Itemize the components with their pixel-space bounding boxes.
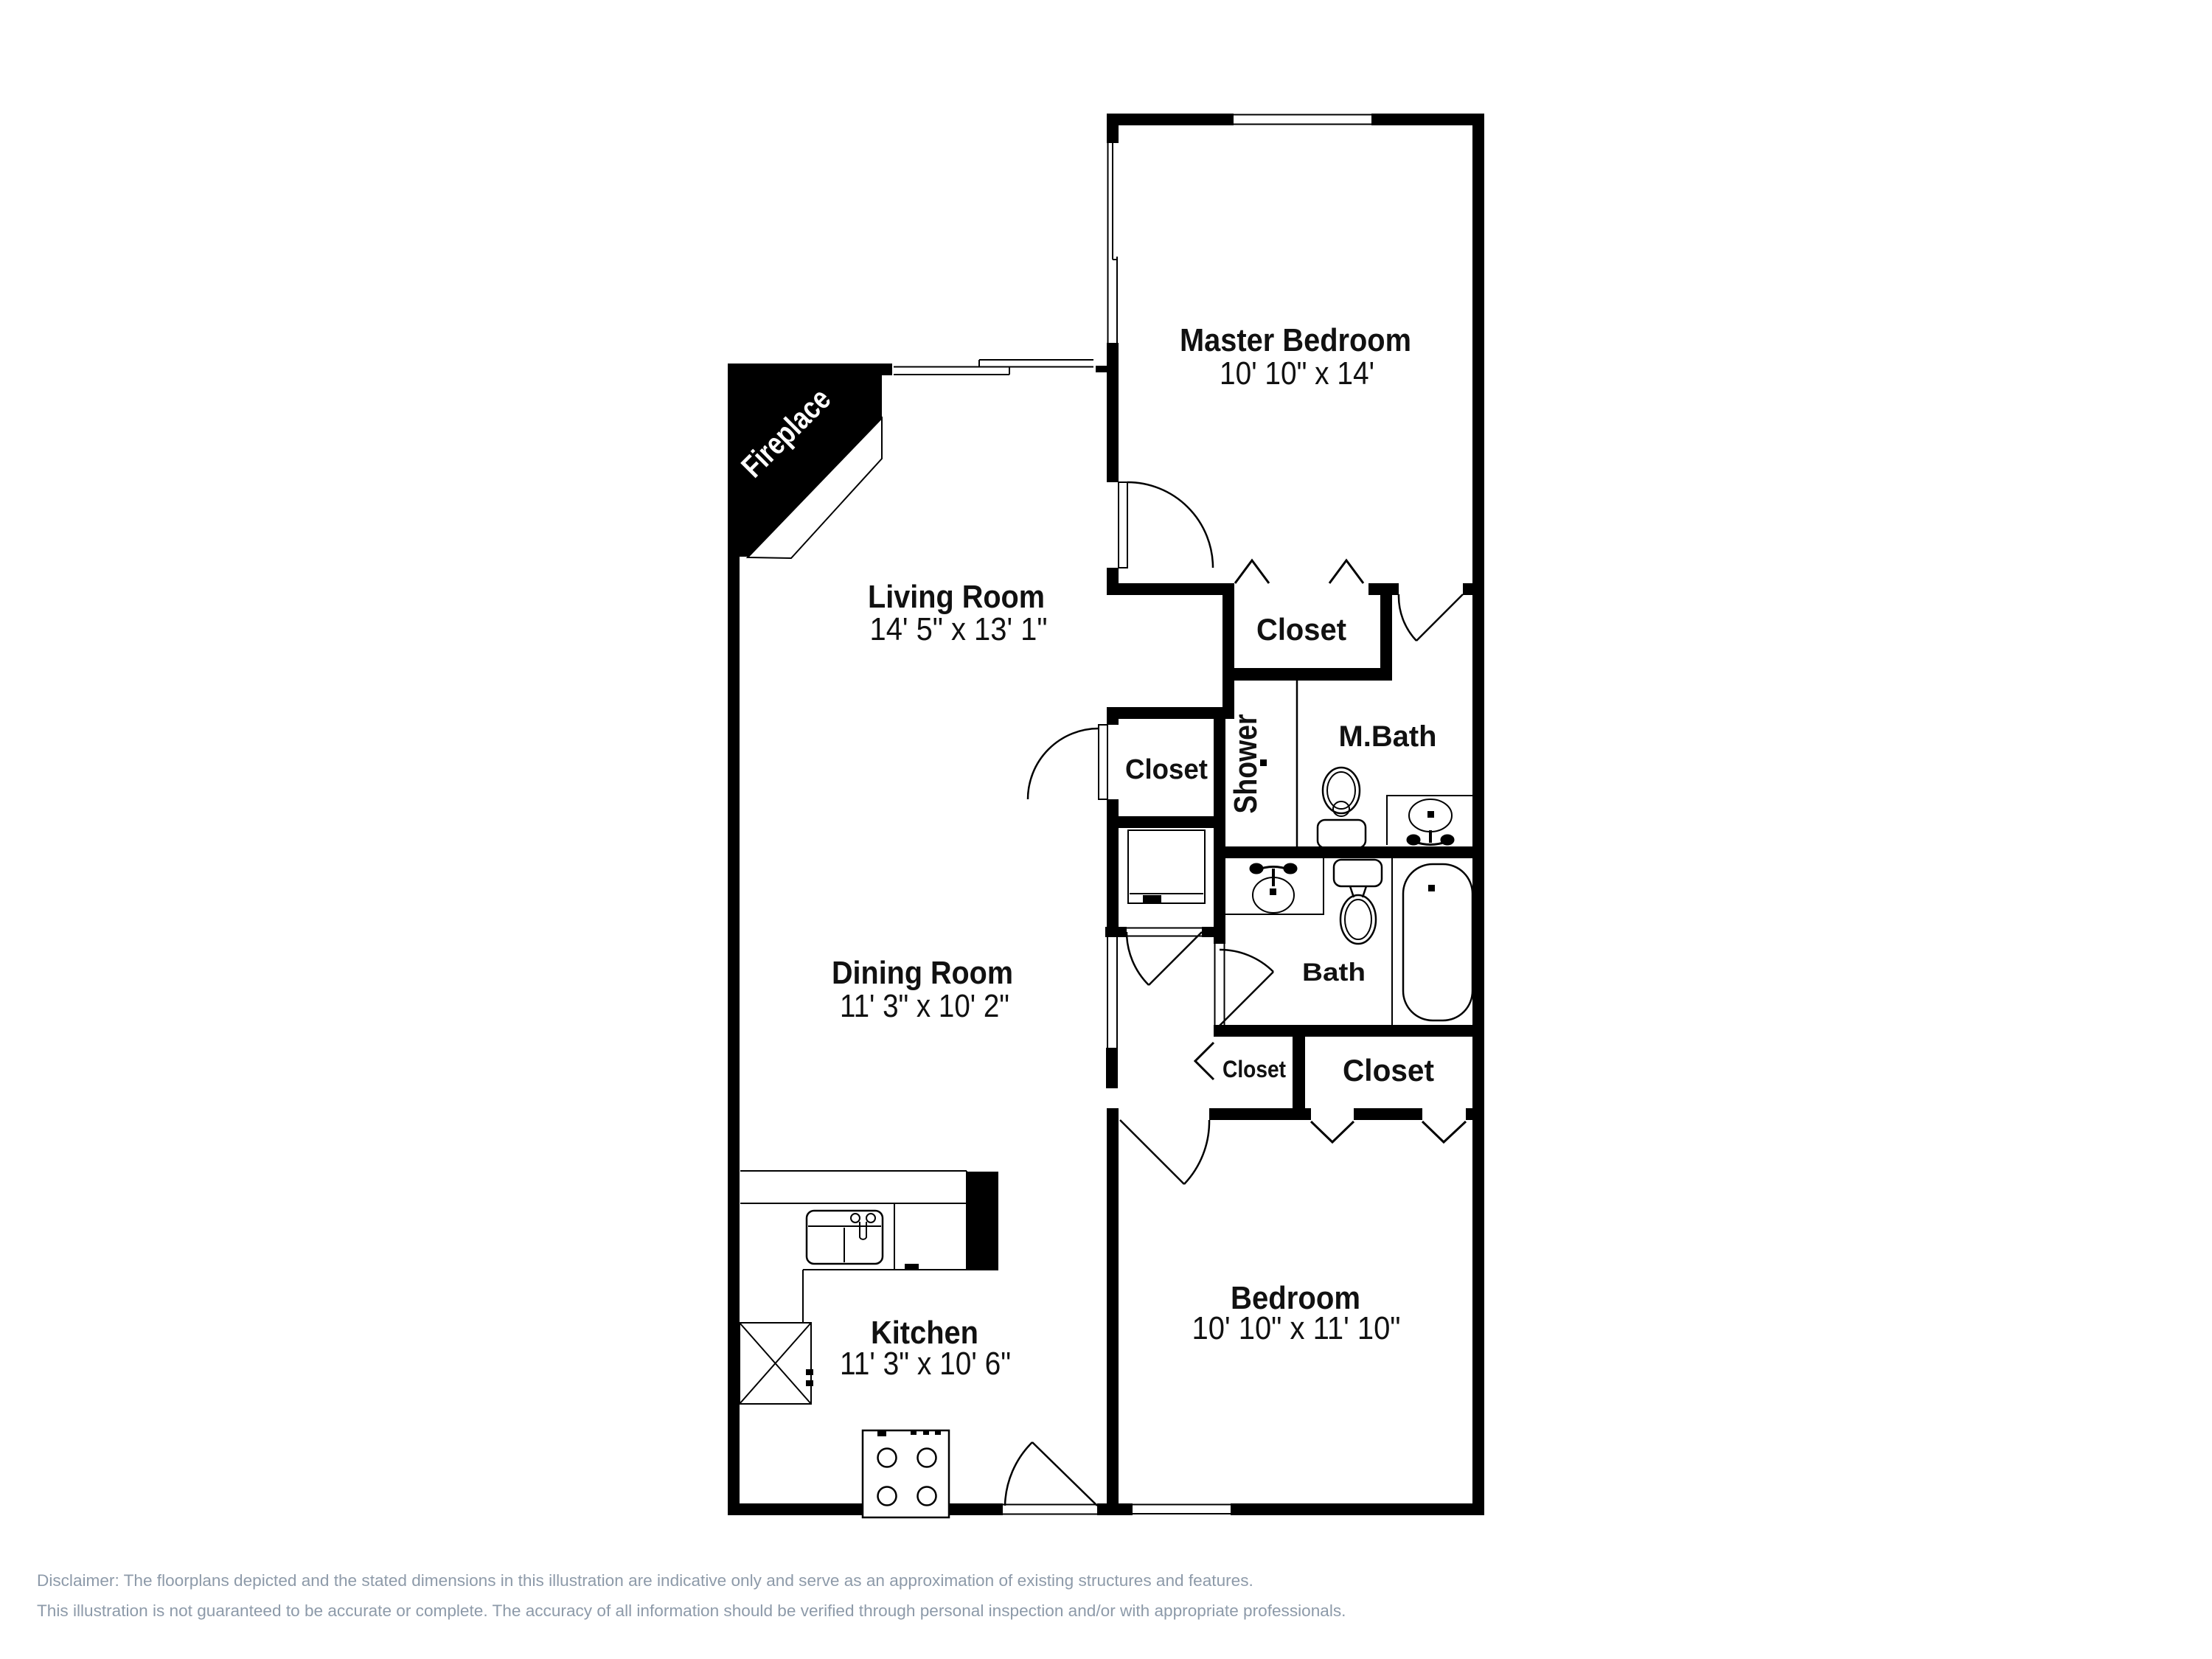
svg-text:Shower: Shower (1228, 714, 1264, 814)
svg-text:11' 3" x 10' 6": 11' 3" x 10' 6" (840, 1346, 1011, 1382)
svg-text:Closet: Closet (1222, 1056, 1286, 1082)
svg-text:Living Room: Living Room (868, 579, 1045, 615)
svg-text:10' 10" x 11' 10": 10' 10" x 11' 10" (1192, 1310, 1401, 1346)
svg-text:10' 10" x 14': 10' 10" x 14' (1220, 355, 1374, 392)
svg-text:M.Bath: M.Bath (1339, 720, 1437, 753)
svg-text:Closet: Closet (1256, 612, 1346, 647)
svg-text:Disclaimer: The floorplans dep: Disclaimer: The floorplans depicted and … (37, 1571, 1253, 1590)
svg-text:Closet: Closet (1125, 754, 1208, 785)
svg-text:11' 3" x 10' 2": 11' 3" x 10' 2" (840, 988, 1009, 1024)
svg-text:This illustration is not guara: This illustration is not guaranteed to b… (37, 1601, 1346, 1620)
svg-text:Bath: Bath (1302, 959, 1366, 987)
svg-text:14' 5" x 13' 1": 14' 5" x 13' 1" (870, 611, 1048, 647)
svg-text:Dining Room: Dining Room (832, 955, 1013, 991)
svg-text:Master Bedroom: Master Bedroom (1180, 322, 1411, 358)
svg-text:Closet: Closet (1343, 1053, 1434, 1088)
